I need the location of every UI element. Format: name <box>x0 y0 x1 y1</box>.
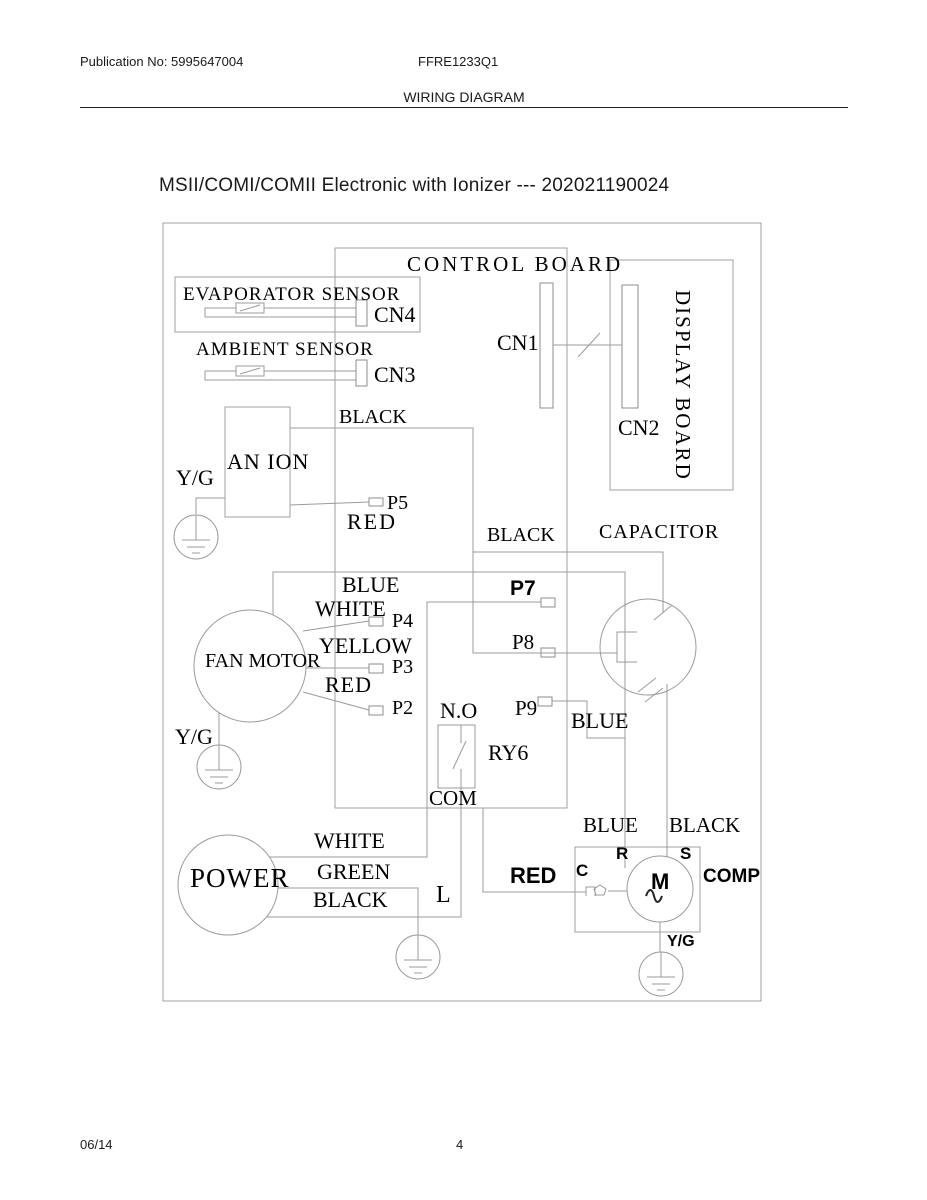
wire-label-black-cap: BLACK <box>487 524 555 547</box>
power-ground-icon <box>396 935 440 979</box>
label-ambient-sensor: AMBIENT SENSOR <box>196 339 374 361</box>
wire-anion-ground <box>196 498 225 514</box>
label-anion: AN ION <box>227 449 309 475</box>
wire-label-white-power: WHITE <box>314 828 385 854</box>
capacitor-icon <box>600 599 696 702</box>
footer-date: 06/14 <box>80 1137 113 1152</box>
wiring-diagram <box>0 0 927 1200</box>
wire-label-black-comp: BLACK <box>669 813 740 838</box>
label-cn1: CN1 <box>497 330 539 356</box>
label-p4: P4 <box>392 610 413 633</box>
wire-white-fan <box>303 621 369 631</box>
wire-label-black-anion: BLACK <box>339 406 407 429</box>
wire-label-green-power: GREEN <box>317 859 390 885</box>
comp-ground-icon <box>639 952 683 996</box>
wire-label-blue-comp: BLUE <box>583 813 638 838</box>
label-c-terminal: C <box>576 861 588 881</box>
label-display-board: DISPLAY BOARD <box>670 290 695 481</box>
fan-ground-icon <box>197 745 241 789</box>
label-l-terminal: L <box>436 882 451 909</box>
anion-ground-icon <box>174 515 218 559</box>
p9-connector <box>538 697 552 706</box>
label-yg-anion: Y/G <box>176 465 214 491</box>
footer-page-number: 4 <box>456 1137 463 1152</box>
cn1-connector <box>540 283 553 408</box>
overload-protector-icon <box>575 885 627 896</box>
label-power: POWER <box>190 863 290 894</box>
label-control-board: CONTROL BOARD <box>407 252 623 277</box>
wire-label-black-power: BLACK <box>313 887 388 913</box>
manual-page: Publication No: 5995647004 FFRE1233Q1 WI… <box>0 0 927 1200</box>
label-p8: P8 <box>512 630 534 655</box>
label-p9: P9 <box>515 696 537 721</box>
evaporator-sensor-lead <box>205 308 356 317</box>
p7-connector <box>541 598 555 607</box>
label-yg-comp: Y/G <box>667 933 695 951</box>
label-motor-m: M <box>651 869 669 895</box>
label-cn2: CN2 <box>618 415 660 441</box>
p5-connector <box>369 498 383 506</box>
wire-red-anion <box>290 502 369 505</box>
ambient-thermistor-icon <box>236 366 264 376</box>
label-fan-motor: FAN MOTOR <box>205 650 320 673</box>
label-cn3: CN3 <box>374 362 416 388</box>
label-s-terminal: S <box>680 844 691 864</box>
wire-label-blue-p9: BLUE <box>571 708 628 734</box>
label-comp: COMP <box>703 866 760 888</box>
label-cn4: CN4 <box>374 302 416 328</box>
wire-cn1-cn2 <box>553 333 622 357</box>
label-capacitor: CAPACITOR <box>599 521 719 544</box>
wire-label-white-fan: WHITE <box>315 596 386 622</box>
ambient-sensor-lead <box>205 371 356 380</box>
relay-switch-icon <box>438 725 475 788</box>
cn2-connector <box>622 285 638 408</box>
label-no: N.O <box>440 698 477 724</box>
label-p5: P5 <box>387 492 408 515</box>
p2-connector <box>369 706 383 715</box>
wire-label-red-fan: RED <box>325 672 372 698</box>
label-com: COM <box>429 786 477 811</box>
label-yg-fan: Y/G <box>175 724 213 750</box>
label-p7: P7 <box>510 577 536 601</box>
label-r-terminal: R <box>616 844 628 864</box>
wire-label-red-comp: RED <box>510 863 556 889</box>
label-p2: P2 <box>392 697 413 720</box>
label-ry6: RY6 <box>488 740 528 766</box>
label-p3: P3 <box>392 656 413 679</box>
cn3-connector <box>356 360 367 386</box>
wire-label-blue-fan: BLUE <box>342 572 399 598</box>
label-evaporator-sensor: EVAPORATOR SENSOR <box>183 284 400 306</box>
